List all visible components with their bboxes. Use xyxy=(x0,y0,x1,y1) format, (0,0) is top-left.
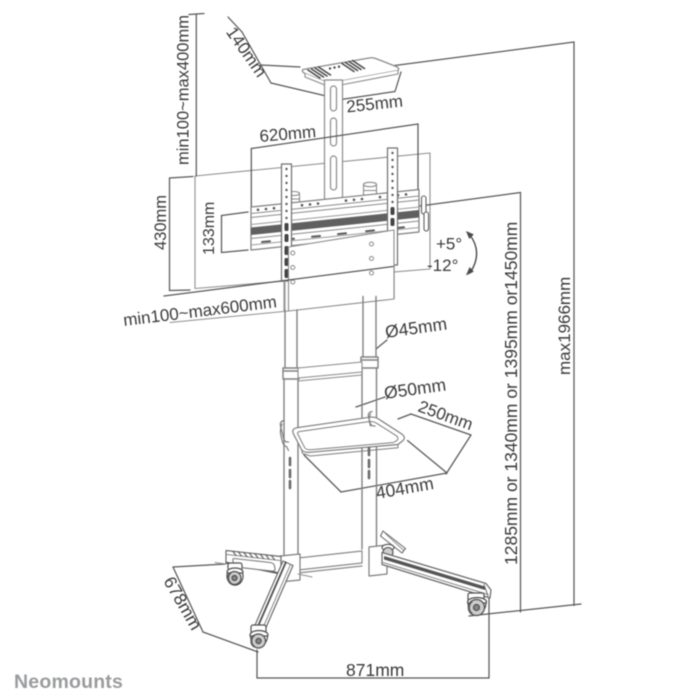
svg-text:min100~max400mm: min100~max400mm xyxy=(175,15,193,165)
svg-text:871mm: 871mm xyxy=(346,660,404,680)
svg-text:max1966mm: max1966mm xyxy=(555,277,574,375)
svg-text:Neomounts: Neomounts xyxy=(14,671,123,693)
svg-text:+5°: +5° xyxy=(436,235,462,254)
svg-text:-12°: -12° xyxy=(427,256,458,275)
svg-text:133mm: 133mm xyxy=(201,202,218,255)
svg-text:430mm: 430mm xyxy=(152,195,170,250)
svg-text:1285mm or 1340mm or 1395mm or1: 1285mm or 1340mm or 1395mm or1450mm xyxy=(501,222,521,565)
